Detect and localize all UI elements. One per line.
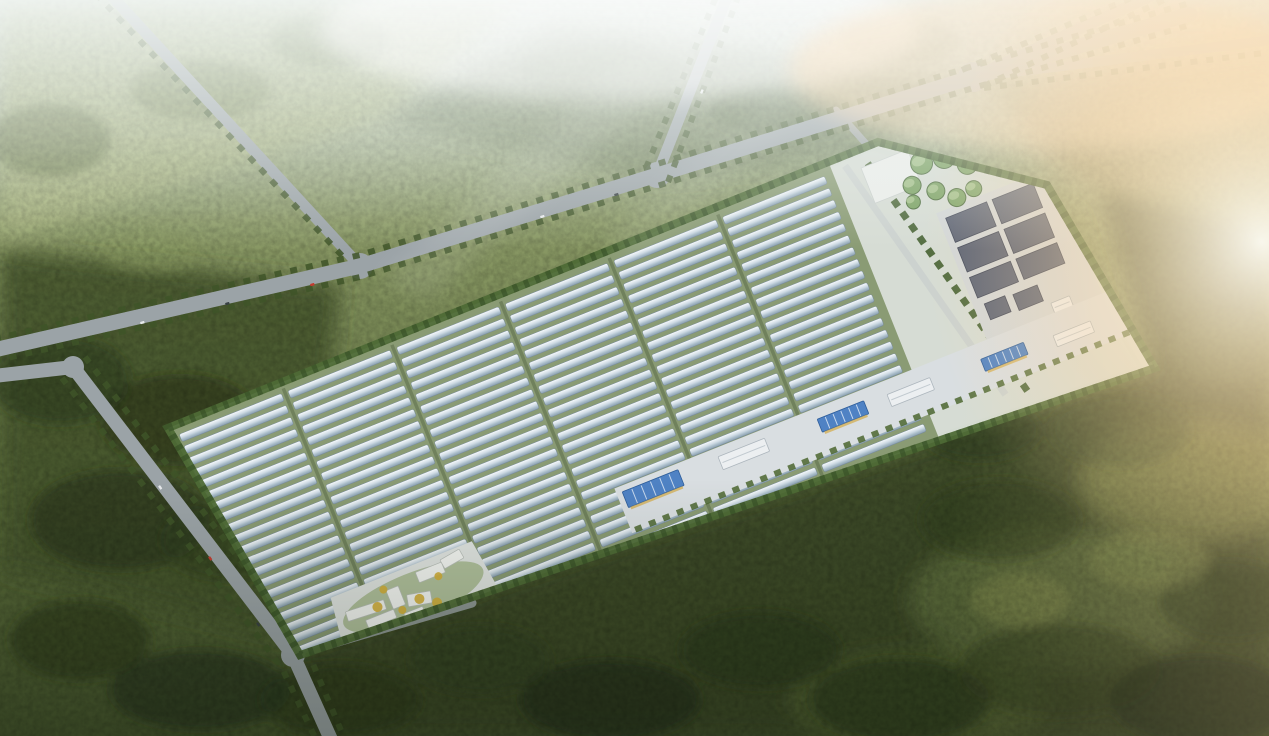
atmosphere <box>0 0 1269 736</box>
aerial-site-rendering <box>0 0 1269 736</box>
bottom-vignette <box>0 0 1269 736</box>
aerial-render-stage <box>0 0 1269 736</box>
